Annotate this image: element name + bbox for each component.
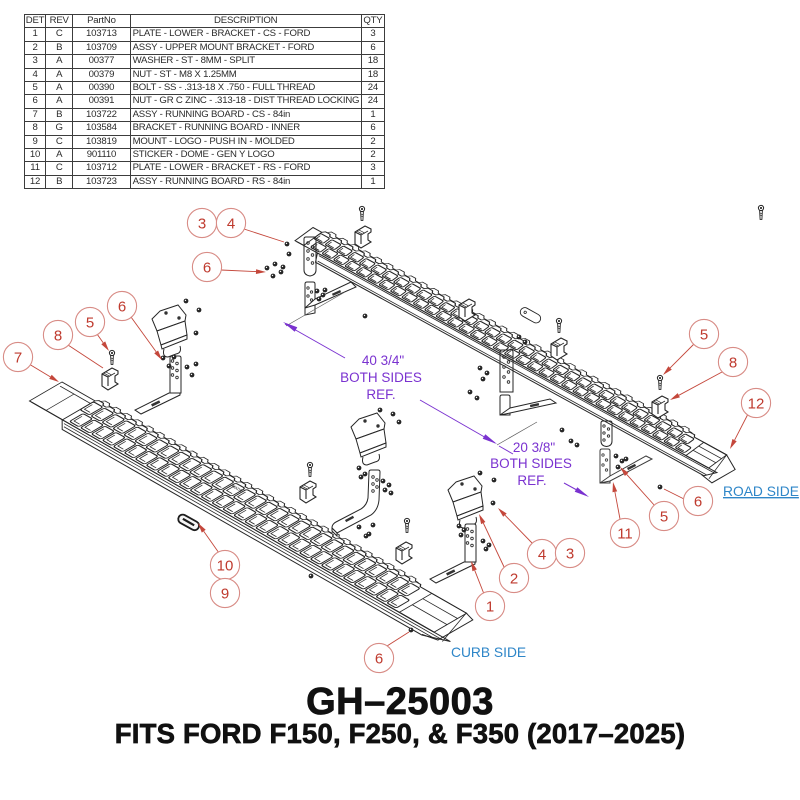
svg-text:8: 8: [54, 327, 62, 344]
svg-text:6: 6: [118, 298, 126, 315]
svg-text:CURB SIDE: CURB SIDE: [451, 645, 526, 660]
svg-text:4: 4: [538, 546, 546, 563]
svg-text:REF.: REF.: [366, 387, 395, 402]
svg-text:20 3/8": 20 3/8": [513, 440, 556, 455]
svg-text:10: 10: [217, 557, 234, 574]
svg-text:8: 8: [729, 354, 737, 371]
svg-text:1: 1: [486, 598, 494, 615]
svg-text:6: 6: [694, 493, 702, 510]
svg-text:ROAD SIDE: ROAD SIDE: [723, 484, 799, 499]
svg-text:11: 11: [617, 525, 633, 542]
svg-text:3: 3: [566, 545, 574, 562]
svg-text:4: 4: [227, 215, 235, 232]
svg-text:5: 5: [86, 314, 94, 331]
svg-text:6: 6: [203, 259, 211, 276]
svg-text:7: 7: [14, 349, 22, 366]
svg-text:5: 5: [700, 326, 708, 343]
svg-text:3: 3: [198, 215, 206, 232]
svg-text:BOTH SIDES: BOTH SIDES: [490, 456, 572, 471]
svg-text:BOTH SIDES: BOTH SIDES: [340, 370, 422, 385]
svg-text:6: 6: [375, 650, 383, 667]
svg-text:5: 5: [660, 508, 668, 525]
svg-text:40 3/4": 40 3/4": [362, 353, 405, 368]
svg-text:9: 9: [221, 585, 229, 602]
svg-text:REF.: REF.: [517, 473, 546, 488]
svg-text:2: 2: [510, 570, 518, 587]
svg-text:12: 12: [748, 395, 765, 412]
